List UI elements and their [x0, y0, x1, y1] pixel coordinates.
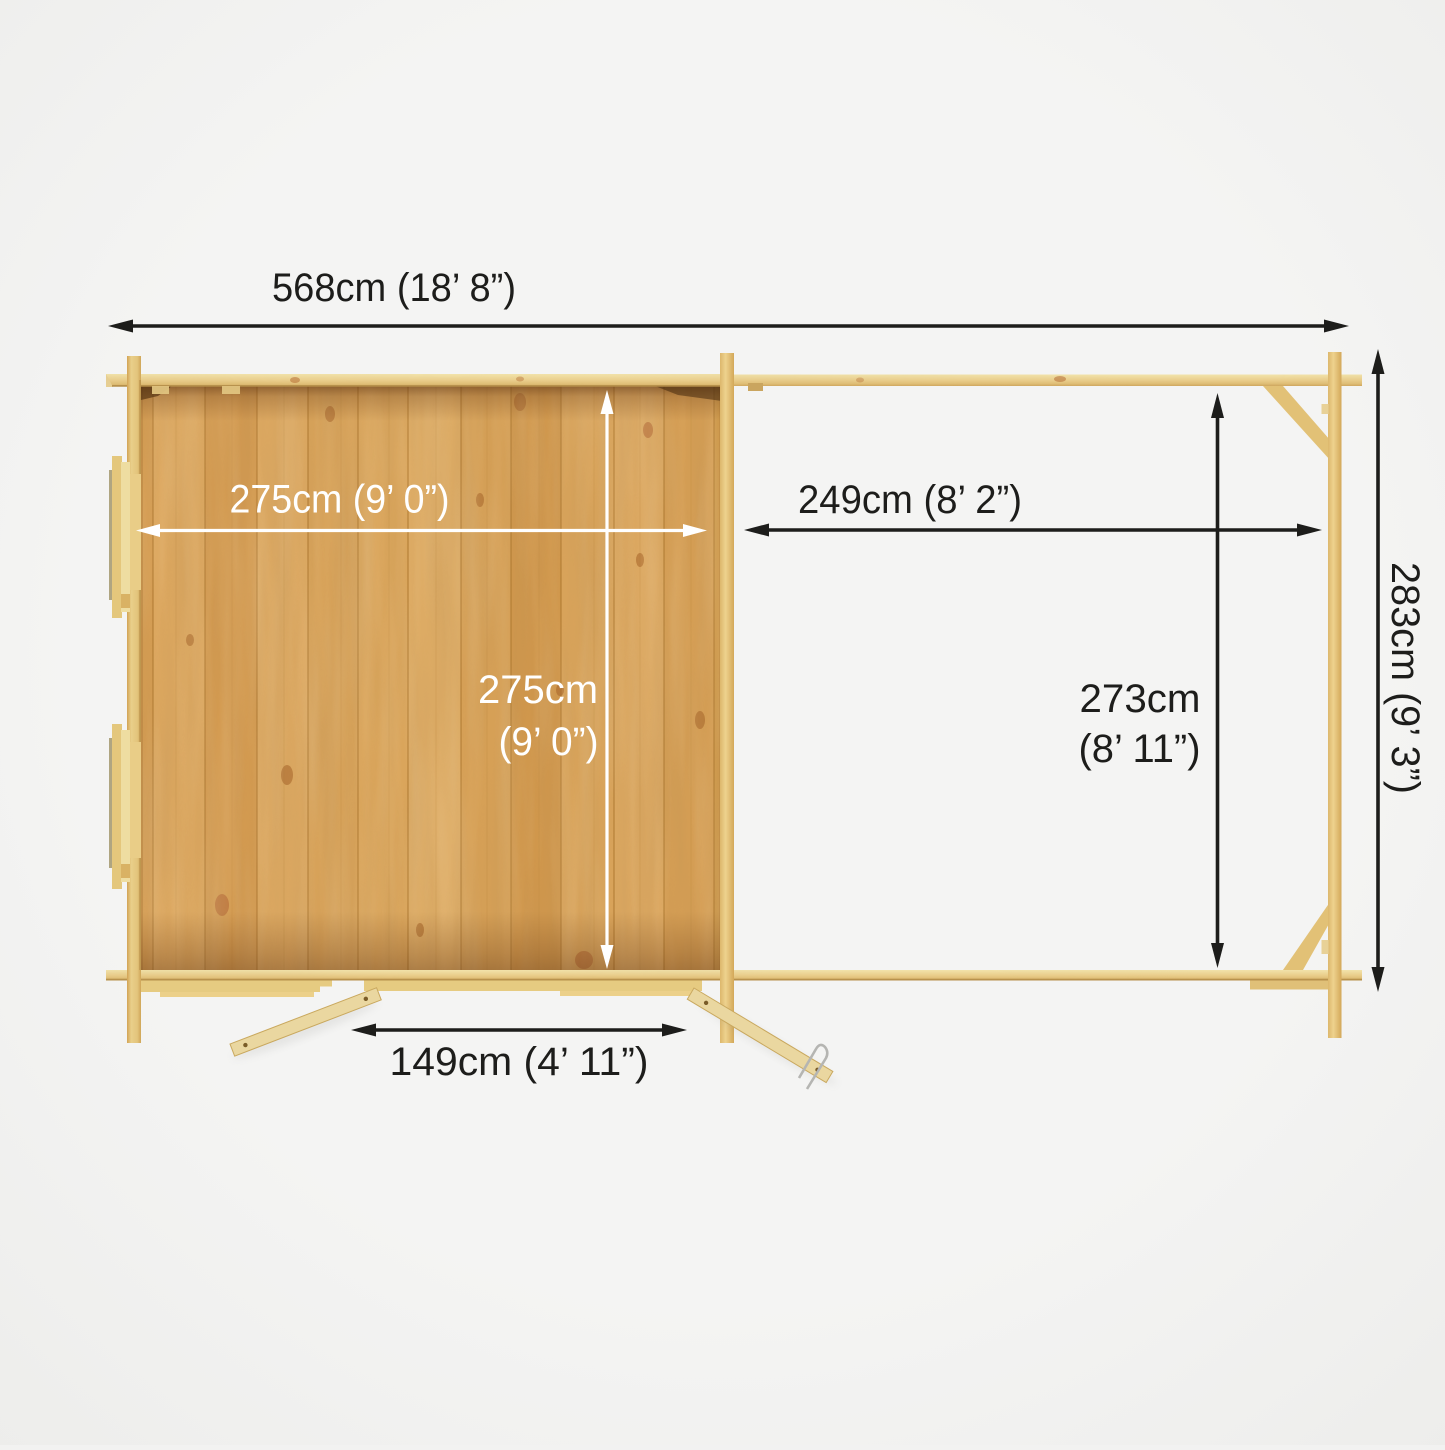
svg-text:(8’ 11”): (8’ 11”) — [1079, 727, 1201, 771]
svg-text:273cm: 273cm — [1080, 677, 1201, 721]
svg-text:(9’ 0”): (9’ 0”) — [499, 720, 599, 764]
svg-text:275cm (9’ 0”): 275cm (9’ 0”) — [230, 478, 450, 522]
svg-text:283cm (9’ 3”): 283cm (9’ 3”) — [1383, 562, 1427, 794]
svg-text:249cm (8’ 2”): 249cm (8’ 2”) — [798, 478, 1022, 522]
svg-text:568cm (18’ 8”): 568cm (18’ 8”) — [272, 266, 516, 310]
svg-text:149cm (4’ 11”): 149cm (4’ 11”) — [390, 1040, 649, 1084]
svg-text:275cm: 275cm — [478, 668, 598, 712]
